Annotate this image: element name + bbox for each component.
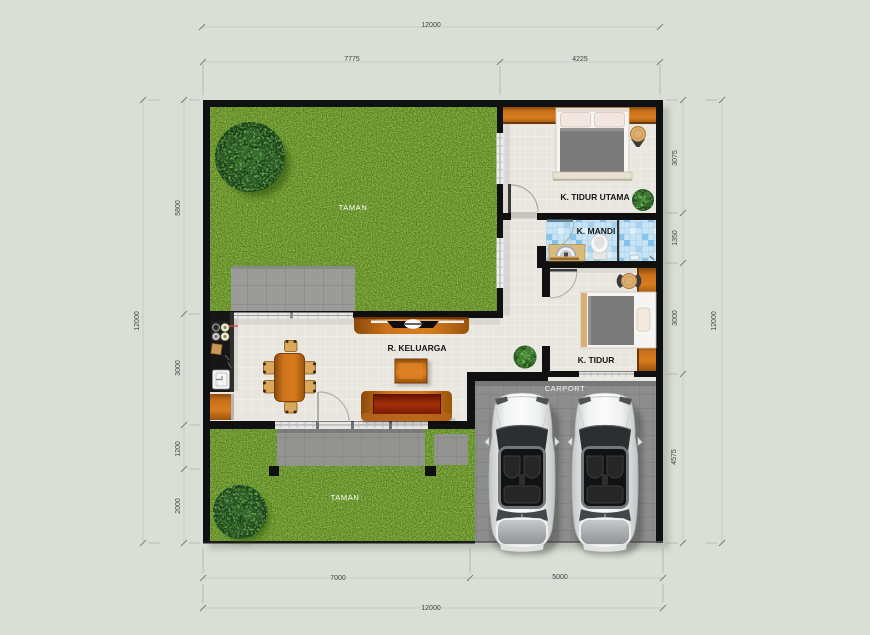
svg-text:K. TIDUR: K. TIDUR: [578, 355, 615, 365]
svg-text:5800: 5800: [175, 200, 182, 216]
svg-text:K. TIDUR UTAMA: K. TIDUR UTAMA: [560, 192, 629, 202]
svg-text:12000: 12000: [421, 605, 441, 612]
svg-text:12000: 12000: [134, 311, 141, 331]
svg-text:7000: 7000: [330, 575, 346, 582]
svg-text:4575: 4575: [671, 449, 678, 465]
svg-text:12000: 12000: [421, 22, 441, 29]
svg-text:2000: 2000: [175, 498, 182, 514]
svg-text:CARPORT: CARPORT: [545, 384, 586, 393]
svg-text:1350: 1350: [672, 230, 679, 246]
svg-text:3000: 3000: [672, 310, 679, 326]
svg-text:4225: 4225: [572, 56, 588, 63]
svg-text:5000: 5000: [552, 574, 568, 581]
svg-text:K. MANDI: K. MANDI: [577, 226, 616, 236]
svg-text:3000: 3000: [175, 360, 182, 376]
svg-text:1200: 1200: [175, 441, 182, 457]
svg-text:3075: 3075: [672, 150, 679, 166]
svg-text:TAMAN: TAMAN: [331, 493, 360, 502]
svg-text:TAMAN: TAMAN: [339, 203, 368, 212]
svg-text:7775: 7775: [344, 56, 360, 63]
svg-text:12000: 12000: [711, 311, 718, 331]
svg-text:R. KELUARGA: R. KELUARGA: [387, 343, 446, 353]
